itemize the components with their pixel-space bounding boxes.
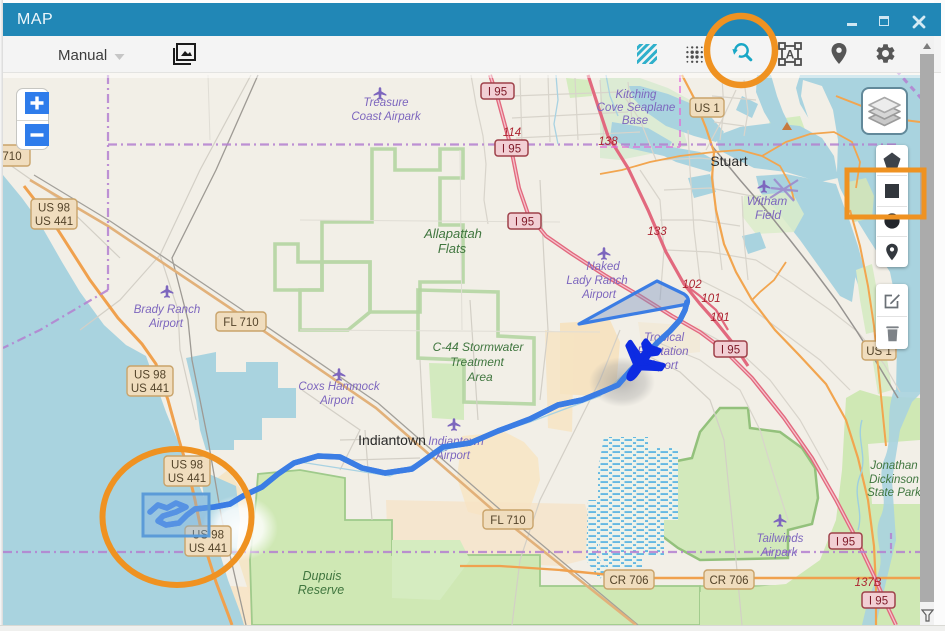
svg-text:Airport: Airport: [148, 318, 184, 330]
svg-text:I 95: I 95: [488, 87, 507, 99]
svg-text:US 98: US 98: [38, 203, 70, 215]
svg-text:Jonathan: Jonathan: [869, 460, 917, 472]
svg-text:Reserve: Reserve: [298, 583, 345, 597]
svg-text:Witham: Witham: [747, 194, 788, 208]
svg-text:I 95: I 95: [869, 596, 888, 608]
svg-text:Lady Ranch: Lady Ranch: [566, 275, 627, 287]
svg-text:114: 114: [503, 127, 521, 139]
svg-text:Allapattah: Allapattah: [423, 226, 482, 241]
svg-text:101: 101: [701, 293, 720, 305]
svg-text:710: 710: [3, 151, 22, 163]
svg-text:US 441: US 441: [168, 473, 206, 485]
svg-text:State Park: State Park: [867, 487, 920, 499]
svg-text:102: 102: [682, 279, 702, 291]
svg-text:Coast Airpark: Coast Airpark: [351, 111, 421, 123]
svg-text:Tailwinds: Tailwinds: [757, 533, 804, 545]
svg-text:I 95: I 95: [515, 217, 534, 229]
svg-text:I 95: I 95: [836, 537, 855, 549]
svg-text:Coxs Hammock: Coxs Hammock: [298, 381, 380, 393]
svg-text:Cove Seaplane: Cove Seaplane: [597, 102, 676, 114]
svg-text:US 98: US 98: [171, 460, 203, 472]
svg-text:I 95: I 95: [502, 144, 521, 156]
svg-text:US 441: US 441: [35, 216, 73, 228]
svg-text:Field: Field: [755, 208, 781, 222]
svg-text:Brady Ranch: Brady Ranch: [134, 304, 200, 316]
svg-text:Dupuis: Dupuis: [303, 569, 342, 583]
svg-text:133: 133: [647, 226, 667, 238]
svg-text:Area: Area: [466, 370, 493, 384]
svg-text:CR 706: CR 706: [610, 575, 649, 587]
svg-text:Dickinson: Dickinson: [869, 474, 919, 486]
svg-text:Treasure: Treasure: [363, 97, 408, 109]
svg-text:Airpark: Airpark: [760, 547, 799, 559]
svg-text:Stuart: Stuart: [710, 153, 747, 169]
svg-text:A: A: [786, 48, 795, 62]
svg-text:Airport: Airport: [581, 289, 617, 301]
svg-text:CR 706: CR 706: [710, 575, 749, 587]
svg-text:FL 710: FL 710: [223, 317, 258, 329]
svg-text:C-44 Stormwater: C-44 Stormwater: [433, 340, 525, 354]
svg-text:Naked: Naked: [586, 261, 620, 273]
svg-text:US 441: US 441: [131, 383, 169, 395]
svg-text:Treatment: Treatment: [450, 355, 504, 369]
svg-text:I 95: I 95: [721, 345, 740, 357]
svg-text:Kitching: Kitching: [616, 89, 658, 101]
svg-text:US 441: US 441: [189, 543, 227, 555]
svg-text:Flats: Flats: [438, 241, 467, 256]
svg-text:101: 101: [710, 312, 729, 324]
svg-text:137B: 137B: [855, 577, 882, 589]
svg-text:Indiantown: Indiantown: [358, 432, 426, 448]
svg-text:US 1: US 1: [694, 103, 720, 115]
svg-text:US 98: US 98: [134, 370, 166, 382]
svg-text:Base: Base: [622, 115, 648, 127]
svg-text:FL 710: FL 710: [490, 515, 525, 527]
svg-text:Airport: Airport: [319, 395, 355, 407]
svg-text:138: 138: [598, 136, 618, 148]
